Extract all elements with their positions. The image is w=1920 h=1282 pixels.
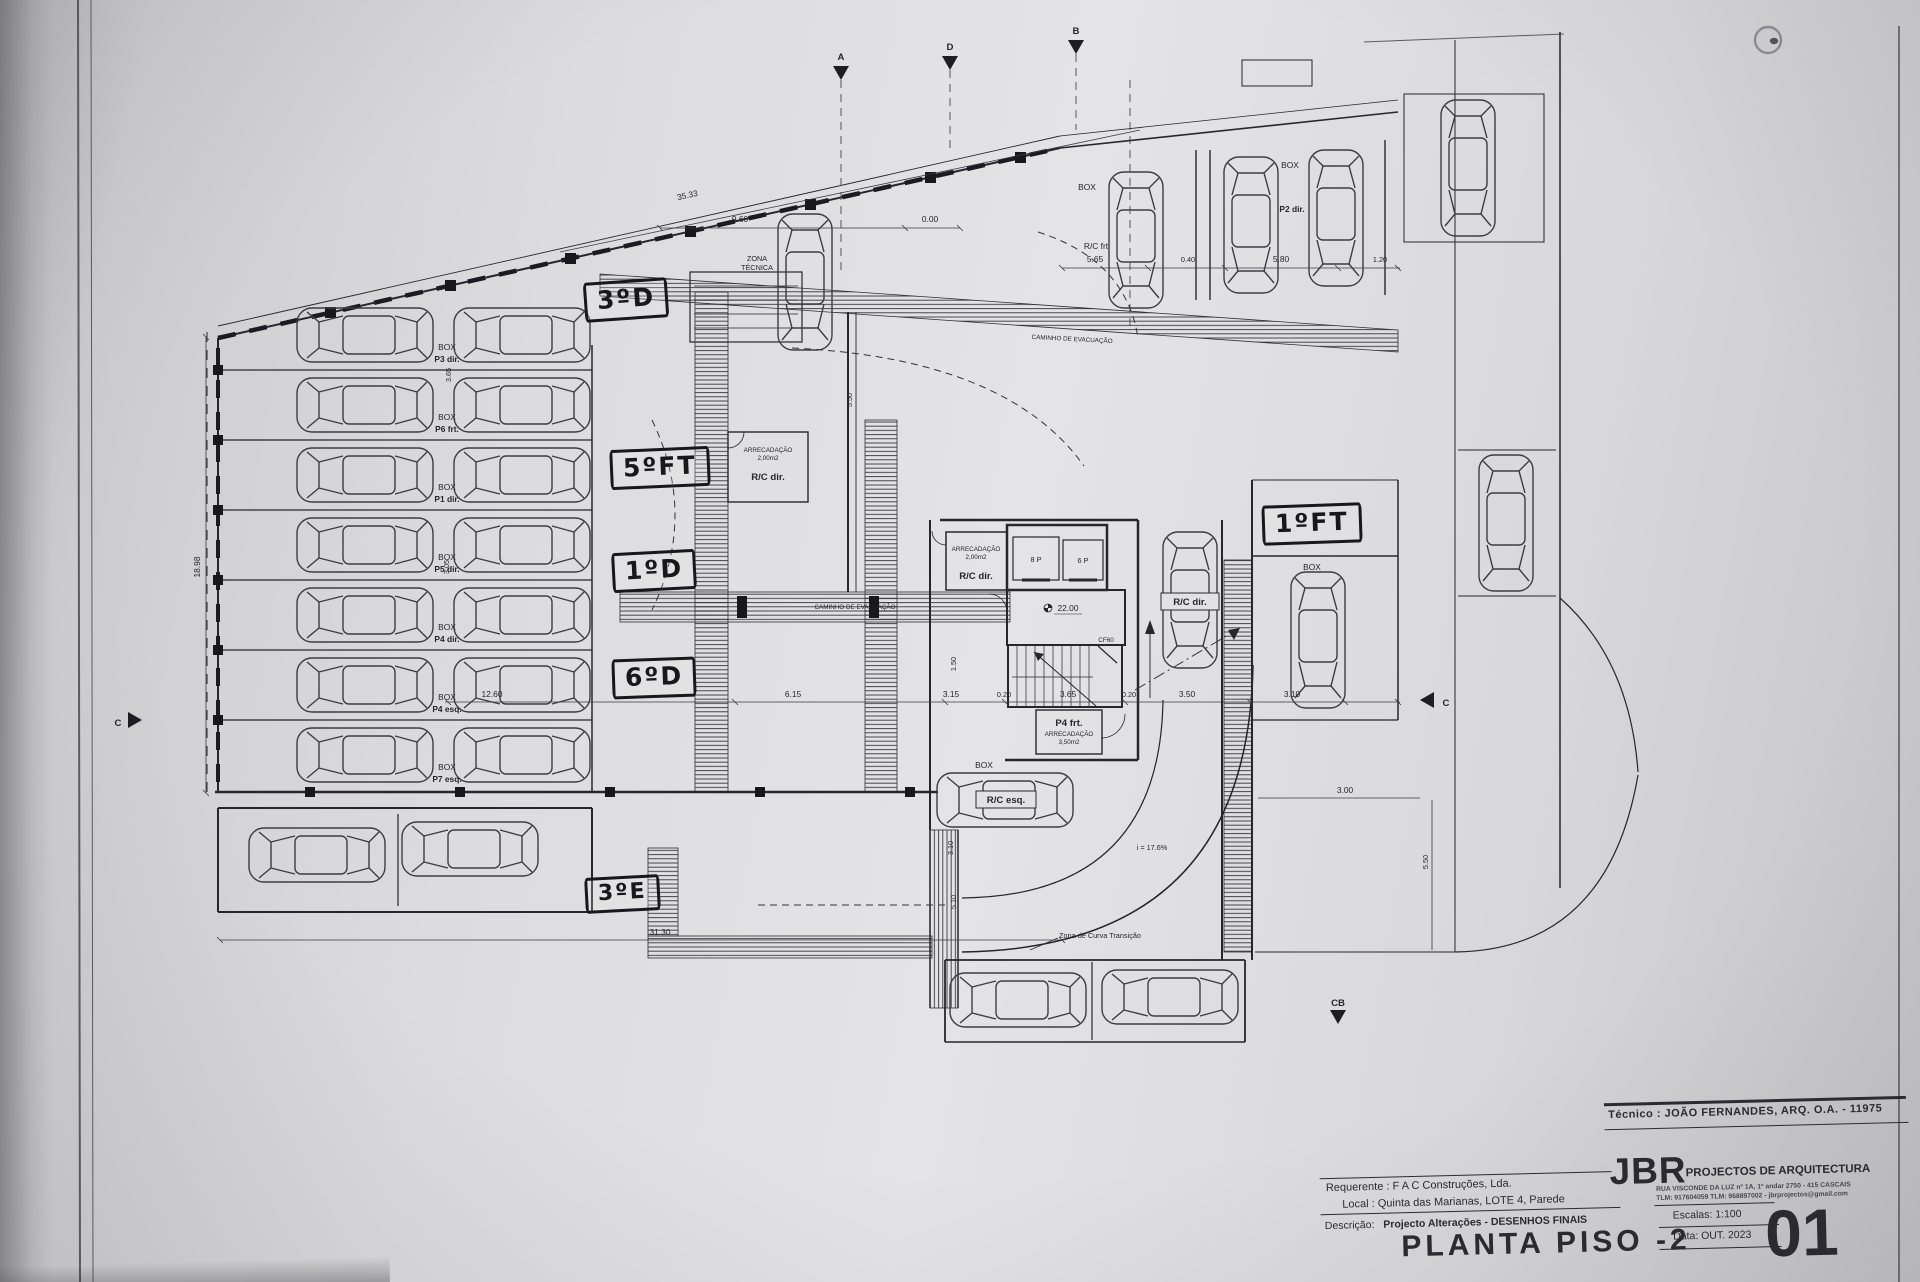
handwritten-unit-3d: 3ºD (583, 277, 670, 322)
escala-line: Escalas: 1:100 (1673, 1208, 1742, 1222)
rc-frt-label: R/C frt (1084, 241, 1109, 251)
data-line: Data: OUT. 2023 (1673, 1229, 1751, 1243)
dim: 6.15 (785, 689, 802, 699)
dim: 0.40 (1181, 255, 1195, 264)
section-letter: B (1073, 26, 1080, 37)
dim: 1.50 (949, 657, 958, 671)
arrecadacao-label: ARRECADAÇÃO (1045, 729, 1094, 738)
section-letter: D (947, 42, 954, 53)
box-label: BOX (1078, 182, 1096, 192)
rc-dir-car-label: R/C dir. (1173, 597, 1207, 608)
arrecadacao-label: ARRECADAÇÃO (744, 445, 793, 454)
dim: 5.50 (845, 393, 854, 407)
titleblock-rule (1654, 1202, 1774, 1206)
box-label: BOX (975, 760, 993, 770)
descricao-label: Descrição: (1325, 1219, 1375, 1232)
arrecadacao-area: 2,00m2 (757, 455, 779, 462)
dim: 3.10 (1284, 689, 1301, 699)
arrecadacao-area: 2,00m2 (965, 554, 987, 561)
dim: 12.60 (482, 689, 503, 699)
titleblock-rule (1605, 1122, 1909, 1130)
p2-dir-label: P2 dir. (1279, 204, 1304, 214)
dim: 3.65 (1060, 689, 1077, 699)
dim: 3.15 (943, 689, 960, 699)
stall-label: P6 frt. (435, 424, 459, 434)
stall-label: P4 esq. (432, 704, 461, 714)
caminho-evacuacao-top: CAMINHO DE EVACUAÇÃO (1031, 332, 1113, 345)
arrecadacao-area: 3,50m2 (1058, 739, 1080, 746)
section-letter: CB (1331, 998, 1345, 1009)
tecnico-line: Técnico : JOÃO FERNANDES, ARQ. O.A. - 11… (1608, 1102, 1882, 1121)
box-label: BOX (438, 692, 456, 702)
dim: 0.20 (1122, 690, 1136, 699)
dim: 3.05 (442, 560, 451, 574)
rc-esq-car-label: R/C esq. (987, 795, 1025, 806)
handwritten-unit-6d: 6ºD (611, 657, 697, 699)
stall-label: P7 esq. (432, 774, 461, 784)
punch-hole (1755, 27, 1781, 53)
requerente-line: Requerente : F A C Construções, Lda. (1326, 1178, 1512, 1195)
lift-6p-label: 6 P (1078, 556, 1089, 565)
dim: 3.00 (1337, 785, 1354, 795)
section-letter: C (115, 718, 122, 729)
section-letter: C (1443, 698, 1450, 709)
box-label: BOX (438, 412, 456, 422)
box-label: BOX (1281, 160, 1299, 170)
stall-label: P3 dir. (434, 354, 459, 364)
dim: 5.65 (1087, 254, 1104, 264)
box-label: BOX (1303, 562, 1321, 572)
stall-label: P4 dir. (434, 634, 459, 644)
dim: 1.20 (1373, 255, 1387, 264)
level-value: 22.00 (1058, 603, 1079, 613)
dim: 3.10 (946, 841, 955, 855)
ramp-slope: i = 17.6% (1137, 843, 1168, 852)
sheet-title: PLANTA PISO -2 (1401, 1223, 1691, 1264)
dim: 3.50 (1179, 689, 1196, 699)
handwritten-unit-1d: 1ºD (611, 549, 697, 593)
section-letter: A (838, 52, 845, 63)
car-fraction-labels: R/C dir. R/C esq. (976, 593, 1219, 808)
dim: 5.50 (1421, 855, 1430, 869)
photographed-floor-plan-sheet: BOX P3 dir. BOX P6 frt. BOX P1 dir. BOX … (0, 0, 1920, 1282)
dim: 3.65 (444, 368, 453, 382)
handwritten-unit-3e: 3ºE (584, 874, 661, 914)
p4-frt-label: P4 frt. (1055, 718, 1082, 729)
dim: 5.10 (949, 895, 958, 909)
dim: 0.20 (997, 690, 1011, 699)
sheet-frame (78, 0, 1899, 1282)
zona-tecnica-label2: TÉCNICA (741, 263, 773, 272)
arrecadacao-label: ARRECADAÇÃO (952, 544, 1001, 553)
box-label: BOX (438, 622, 456, 632)
dim: 5.80 (1273, 254, 1290, 264)
handwritten-unit-5ft: 5ºFT (609, 446, 710, 490)
plan-drawing: BOX P3 dir. BOX P6 frt. BOX P1 dir. BOX … (0, 0, 1920, 1282)
stall-label: P1 dir. (434, 494, 459, 504)
hatched-evacuation-paths (600, 274, 1398, 1008)
dim: 31.30 (650, 927, 671, 937)
cf60-label: CF60 (1098, 637, 1114, 644)
box-label: BOX (438, 342, 456, 352)
box-label: BOX (438, 762, 456, 772)
dim: 0.00 (922, 214, 939, 224)
title-block: Técnico : JOÃO FERNANDES, ARQ. O.A. - 11… (1068, 1088, 1920, 1282)
curva-transicao: Zona de Curva Transição (1059, 931, 1141, 940)
firm-descriptor: PROJECTOS DE ARQUITECTURA (1686, 1163, 1871, 1180)
walls (207, 32, 1638, 1042)
rc-dir-room-label: R/C dir. (751, 472, 785, 483)
caminho-evacuacao-mid: CAMINHO DE EVACUAÇÃO (814, 602, 895, 611)
rc-dir-room-label: R/C dir. (959, 571, 993, 582)
zona-tecnica-label: ZONA (747, 254, 767, 263)
handwritten-unit-1ft: 1ºFT (1261, 502, 1362, 545)
box-label: BOX (438, 482, 456, 492)
dim: 9.60 (732, 214, 749, 224)
lift-8p-label: 8 P (1031, 555, 1042, 564)
dim: 18.98 (192, 556, 202, 577)
sheet-number: 01 (1764, 1194, 1839, 1272)
dim: 35.33 (676, 188, 699, 202)
